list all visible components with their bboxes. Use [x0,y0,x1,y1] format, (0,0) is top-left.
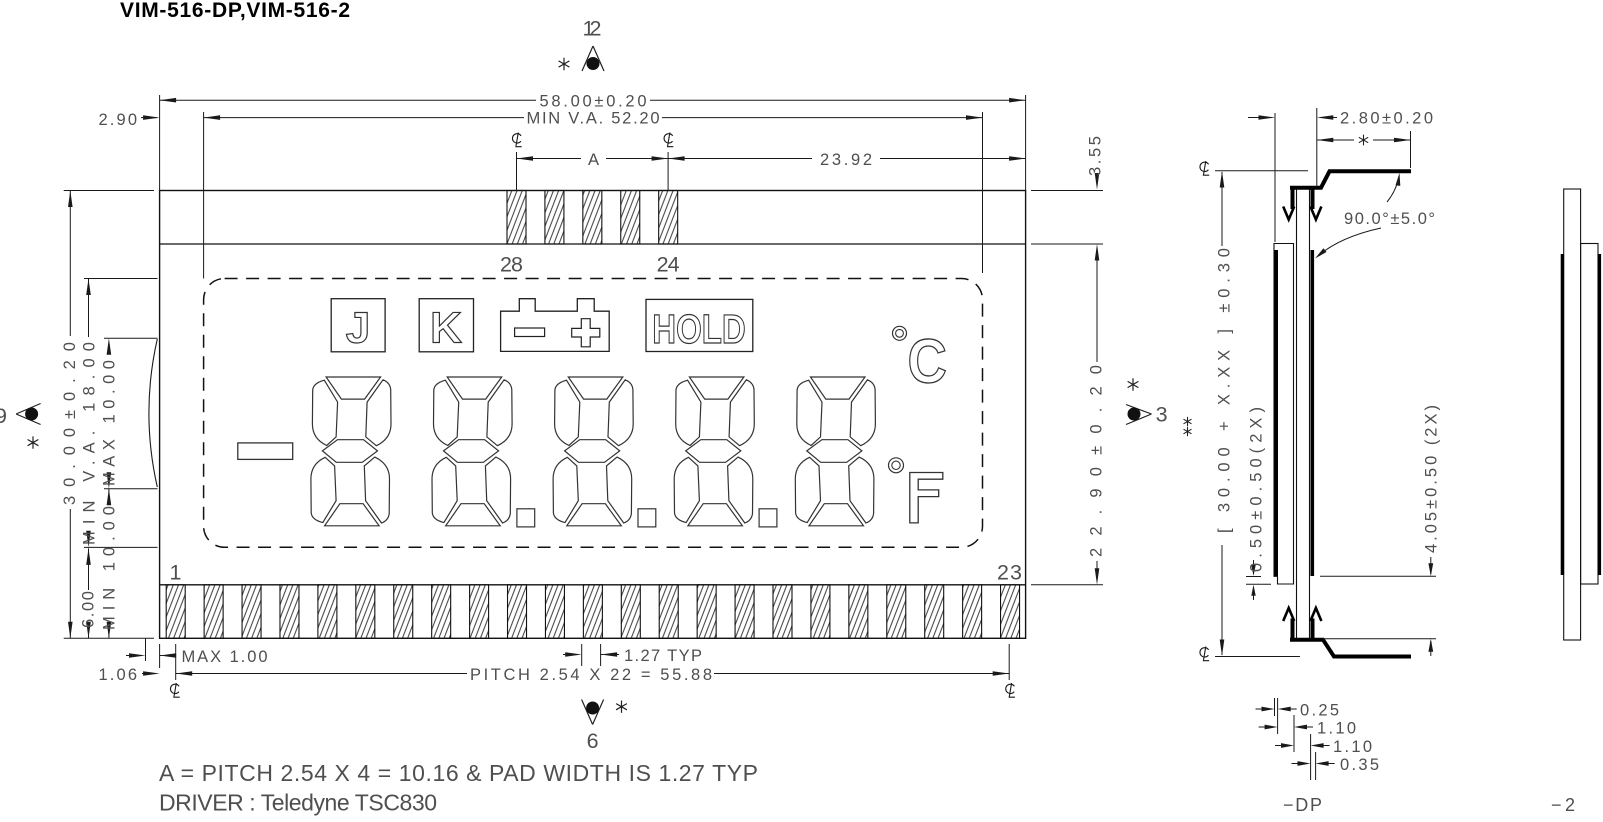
svg-text:0.25: 0.25 [1300,702,1339,720]
svg-text:MAX 1.00: MAX 1.00 [182,648,268,666]
svg-text:A: A [588,151,599,169]
svg-text:1.10: 1.10 [1333,738,1372,756]
svg-text:−DP: −DP [1283,795,1322,815]
svg-text:1.06: 1.06 [99,666,138,684]
svg-text:3: 3 [1156,403,1168,427]
svg-text:6: 6 [587,729,599,753]
svg-text:1.10: 1.10 [1317,720,1356,738]
svg-text:6.00: 6.00 [80,591,98,628]
svg-text:9: 9 [0,404,7,428]
svg-text:VIM-516-DP,VIM-516-2: VIM-516-DP,VIM-516-2 [120,0,350,22]
svg-text:0.35: 0.35 [1340,756,1379,774]
svg-text:A = PITCH 2.54 X 4 = 10: A = PITCH 2.54 X 4 = 10.16 & PAD WIDTH I… [159,760,758,786]
svg-text:1.27 TYP: 1.27 TYP [624,647,702,665]
svg-text:C: C [908,327,947,396]
svg-text:12: 12 [583,17,602,41]
svg-text:23.92: 23.92 [820,151,872,169]
svg-text:K: K [430,304,462,353]
svg-text:HOLD: HOLD [652,306,746,352]
svg-text:3.55: 3.55 [1087,136,1105,176]
svg-text:28: 28 [500,253,523,277]
svg-text:2.80±0.20: 2.80±0.20 [1340,110,1433,128]
svg-text:J: J [346,304,370,353]
svg-text:DRIVER : Teledyne TSC830: DRIVER : Teledyne TSC830 [159,790,437,816]
svg-text:24: 24 [657,253,680,277]
svg-text:1: 1 [170,561,182,585]
svg-text:23: 23 [997,561,1022,585]
svg-text:MIN V.A. 52.20: MIN V.A. 52.20 [527,110,660,128]
svg-text:2.90: 2.90 [99,111,138,129]
svg-text:90.0°±5.0°: 90.0°±5.0° [1344,210,1435,228]
svg-text:PITCH 2.54 X 22 = 55.88: PITCH 2.54 X 22 = 55.88 [470,666,712,684]
svg-text:MAX 10.00: MAX 10.00 [101,360,119,486]
